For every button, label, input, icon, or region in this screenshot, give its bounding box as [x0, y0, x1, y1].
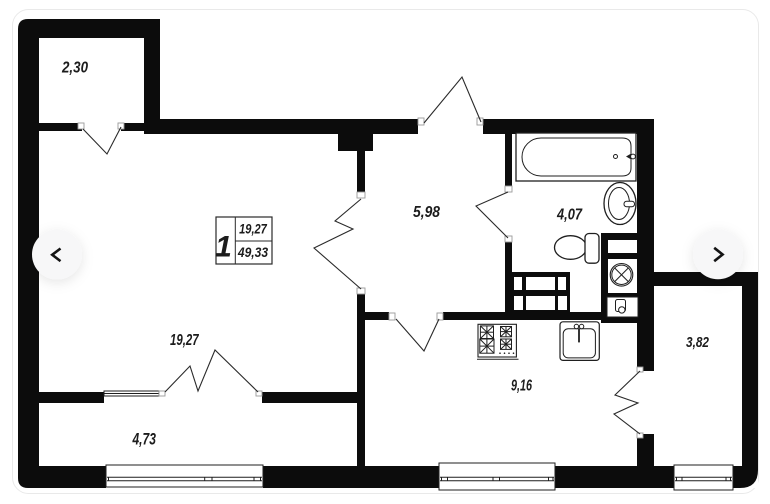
svg-text:19,27: 19,27 — [239, 221, 268, 237]
svg-text:4,07: 4,07 — [556, 207, 583, 224]
svg-text:4,73: 4,73 — [132, 431, 156, 449]
svg-text:9,16: 9,16 — [511, 378, 532, 395]
svg-text:2,30: 2,30 — [61, 60, 88, 77]
svg-text:1: 1 — [215, 231, 232, 264]
svg-text:19,27: 19,27 — [170, 332, 199, 349]
svg-text:5,98: 5,98 — [413, 204, 440, 221]
svg-text:49,33: 49,33 — [237, 244, 268, 260]
svg-text:3,82: 3,82 — [686, 334, 710, 351]
